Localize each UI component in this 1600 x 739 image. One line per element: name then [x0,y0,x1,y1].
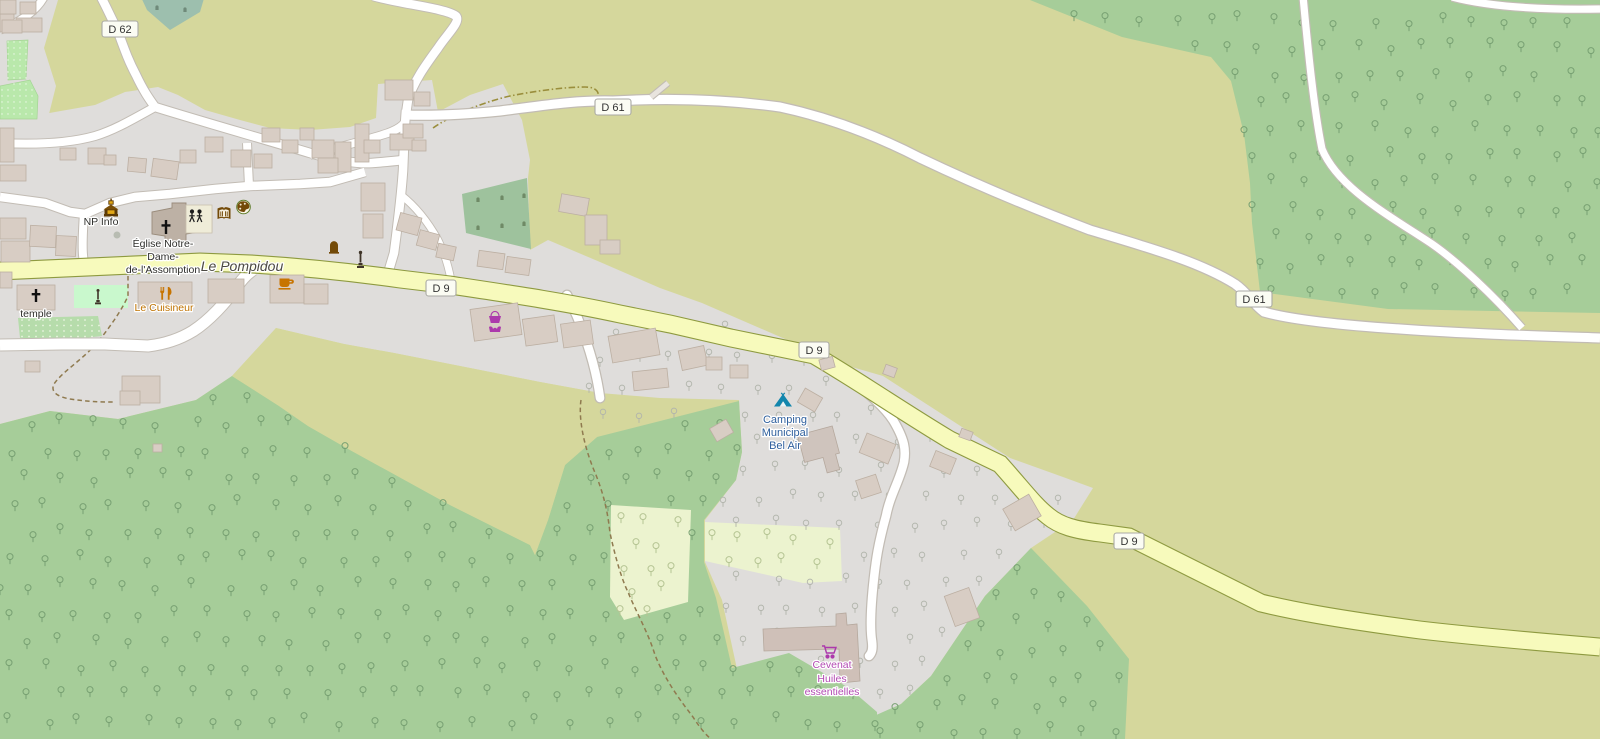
svg-text:Municipal: Municipal [762,427,808,439]
svg-text:D 9: D 9 [432,283,449,295]
svg-text:Cevenat: Cevenat [812,659,851,671]
svg-text:Le Cuisineur: Le Cuisineur [135,302,194,314]
svg-text:Dame-: Dame- [147,251,179,263]
svg-text:de-l'Assomption: de-l'Assomption [126,264,201,276]
svg-text:D 9: D 9 [1120,536,1137,548]
svg-text:Huiles: Huiles [817,673,846,685]
svg-text:temple: temple [20,308,52,320]
svg-text:NP Info: NP Info [84,216,119,228]
svg-text:Le Pompidou: Le Pompidou [201,258,284,274]
svg-text:D 61: D 61 [1242,294,1265,306]
svg-text:essentielles: essentielles [805,686,860,698]
svg-text:D 62: D 62 [108,24,131,36]
svg-text:Église Notre-: Église Notre- [133,237,194,250]
svg-text:D 61: D 61 [601,102,624,114]
svg-text:Bel Air: Bel Air [769,440,801,452]
svg-text:D 9: D 9 [805,345,822,357]
svg-text:Camping: Camping [763,414,807,426]
